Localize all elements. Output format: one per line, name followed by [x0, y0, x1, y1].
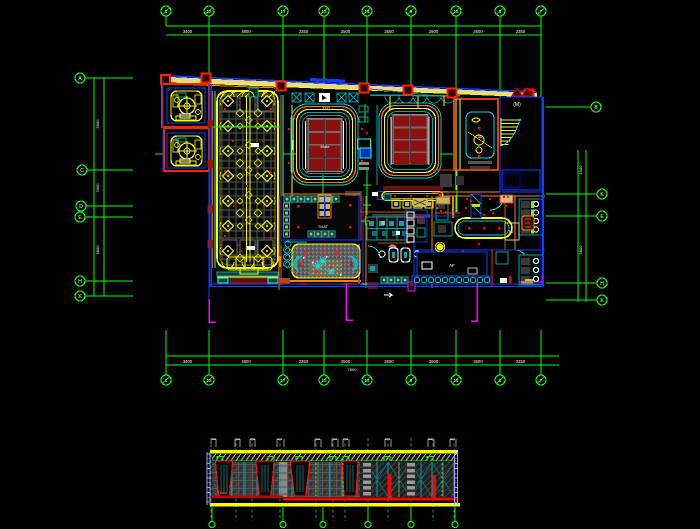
- svg-text:3300: 3300: [95, 183, 100, 193]
- svg-text:2600: 2600: [384, 29, 394, 34]
- svg-text:3400: 3400: [183, 29, 193, 34]
- svg-text:2350: 2350: [299, 359, 309, 364]
- svg-text:17: 17: [280, 378, 286, 383]
- svg-text:Mate: Mate: [321, 144, 331, 149]
- svg-text:H: H: [78, 279, 82, 285]
- svg-text:5500: 5500: [95, 119, 100, 129]
- svg-text:13: 13: [321, 9, 327, 14]
- svg-text:2600: 2600: [384, 359, 394, 364]
- svg-text:4800: 4800: [241, 359, 251, 364]
- svg-text:2600: 2600: [473, 359, 483, 364]
- svg-text:5800: 5800: [578, 245, 583, 255]
- svg-text:2500: 2500: [341, 359, 351, 364]
- svg-text:3400: 3400: [183, 359, 193, 364]
- svg-text:4800: 4800: [241, 29, 251, 34]
- svg-text:THAT: THAT: [318, 249, 329, 254]
- svg-text:12: 12: [206, 9, 212, 14]
- svg-text:17: 17: [280, 9, 286, 14]
- svg-text:2350: 2350: [516, 29, 526, 34]
- svg-text:14: 14: [364, 378, 370, 383]
- svg-text:C: C: [80, 168, 84, 174]
- svg-text:D: D: [79, 204, 83, 210]
- svg-text:2600: 2600: [473, 29, 483, 34]
- svg-text:15: 15: [453, 9, 459, 14]
- svg-text:15: 15: [453, 378, 459, 383]
- svg-text:7500: 7500: [348, 367, 358, 372]
- svg-text:3D: 3D: [477, 134, 482, 139]
- svg-text:1500: 1500: [578, 165, 583, 175]
- svg-text:14: 14: [364, 9, 370, 14]
- svg-text:2600: 2600: [429, 359, 439, 364]
- svg-text:2350: 2350: [516, 359, 526, 364]
- svg-text:5800: 5800: [95, 245, 100, 255]
- svg-text:THAT: THAT: [318, 224, 329, 229]
- svg-text:13: 13: [321, 378, 327, 383]
- svg-text:AF: AF: [449, 263, 455, 268]
- svg-text:12: 12: [206, 378, 212, 383]
- svg-text:2500: 2500: [341, 29, 351, 34]
- svg-text:2600: 2600: [429, 29, 439, 34]
- svg-text:(M): (M): [513, 102, 521, 108]
- svg-text:2350: 2350: [299, 29, 309, 34]
- svg-text:H: H: [600, 281, 604, 287]
